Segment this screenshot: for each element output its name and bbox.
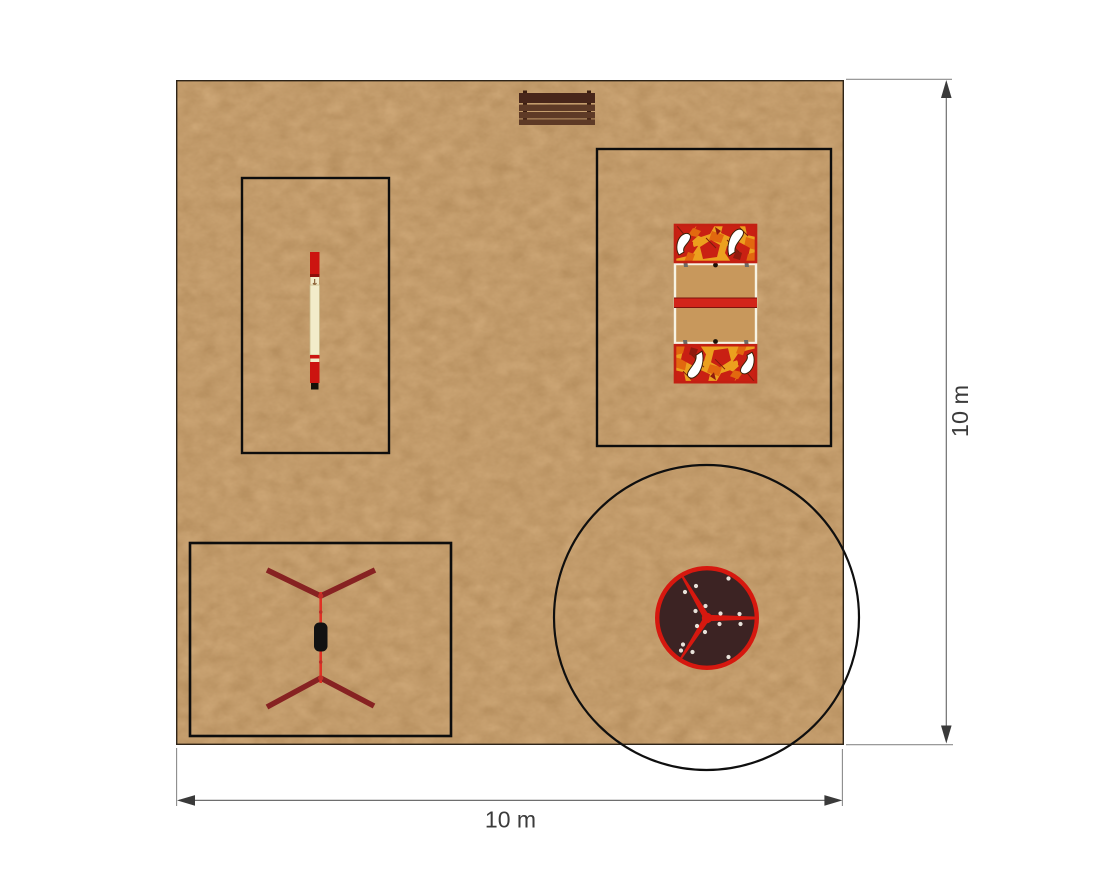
svg-text:10 m: 10 m — [485, 807, 536, 833]
svg-text:10 m: 10 m — [947, 385, 973, 437]
